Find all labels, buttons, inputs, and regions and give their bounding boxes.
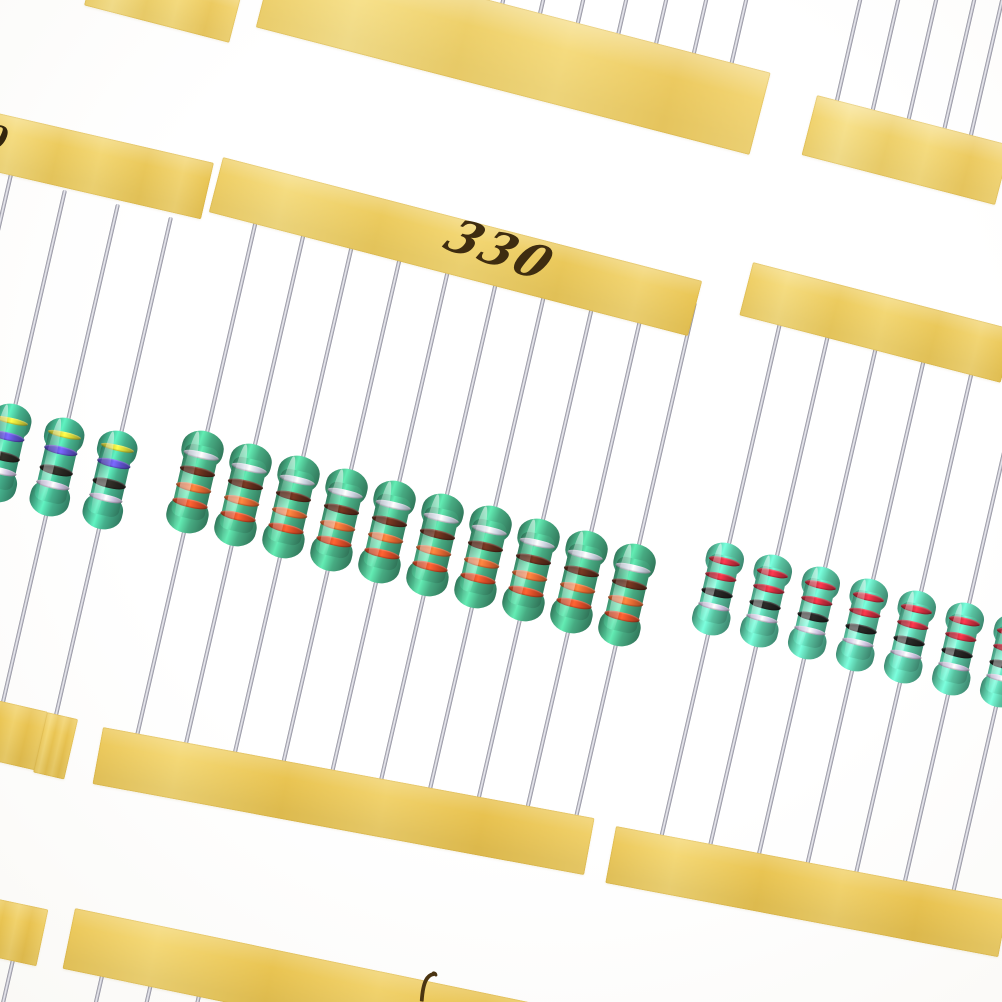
tape-strip: 0 <box>0 110 214 219</box>
tape-strip: 330 <box>209 157 703 336</box>
resistor <box>786 563 842 663</box>
tape-strip <box>92 727 594 875</box>
tape-handwritten-label-330: 330 <box>437 213 563 288</box>
resistor <box>690 539 746 639</box>
resistor <box>80 427 140 533</box>
resistor <box>0 400 34 506</box>
lead-wire <box>903 0 940 137</box>
tape-strip <box>801 95 1002 205</box>
tape-strip <box>84 0 242 43</box>
resistor <box>27 414 87 520</box>
tape-strip <box>256 0 771 155</box>
resistor <box>834 575 890 675</box>
lead-wire <box>868 0 902 124</box>
photo-of-resistor-tape-strips: 0330 <box>0 0 1002 1002</box>
resistor <box>738 551 794 651</box>
tape-partial-digit: 0 <box>0 119 11 156</box>
lead-wire <box>832 0 864 114</box>
resistor <box>930 599 986 699</box>
tape-strip <box>605 826 1002 957</box>
resistor <box>882 587 938 687</box>
tape-strip <box>62 908 603 1002</box>
tape-strip <box>0 895 48 966</box>
lead-wire <box>0 170 14 317</box>
